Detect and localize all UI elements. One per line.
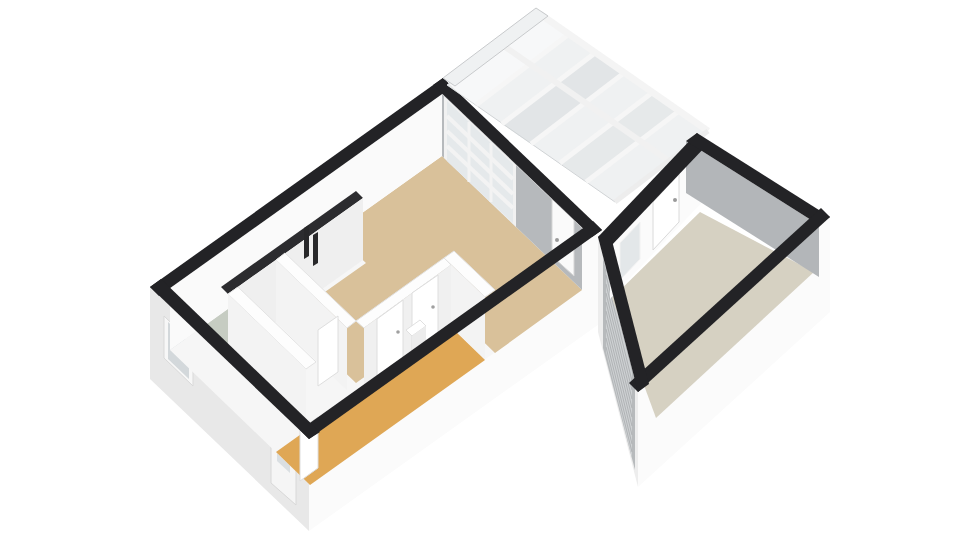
floorplan-3d-svg: [0, 0, 960, 540]
floorplan-3d-view: [0, 0, 960, 540]
garage-nw-door-handle: [673, 198, 677, 202]
ne-wall-door-handle: [555, 238, 559, 242]
duct-bar-2: [313, 232, 318, 266]
duct-bar-1: [304, 225, 309, 259]
hall-door-2-handle: [431, 305, 435, 309]
hall-door-1-handle: [396, 330, 400, 334]
